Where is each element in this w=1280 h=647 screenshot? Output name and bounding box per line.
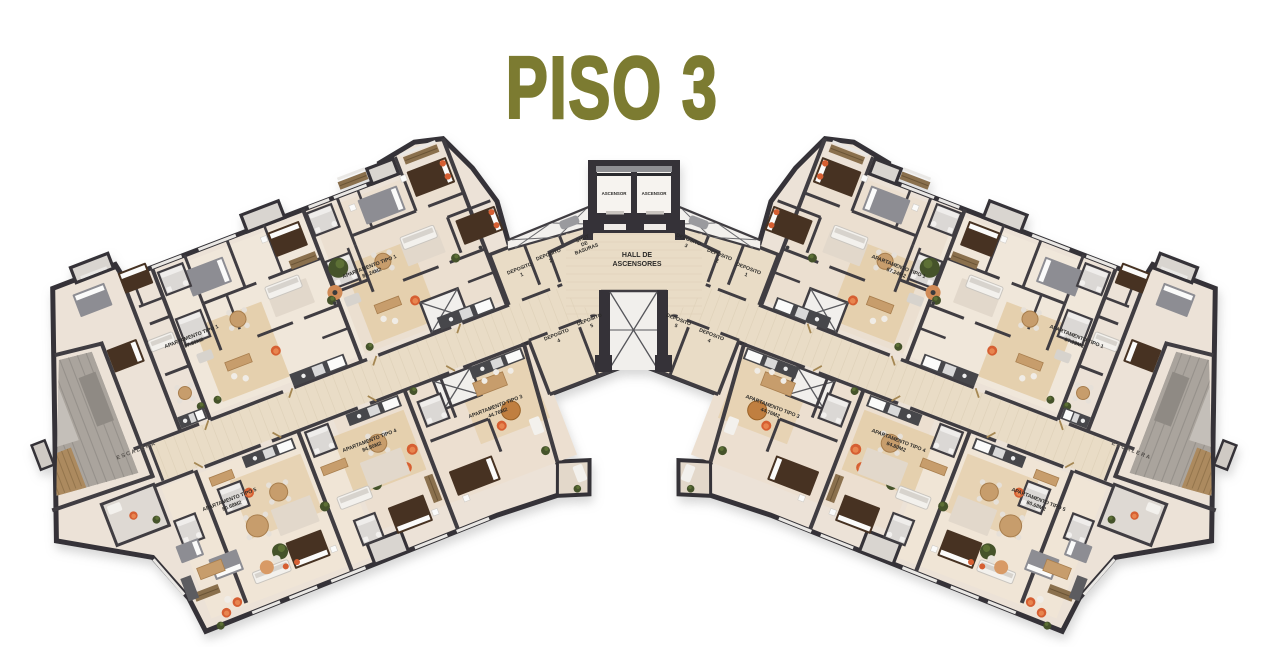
svg-text:ASCENSOR: ASCENSOR bbox=[642, 191, 668, 196]
svg-text:HALL DE: HALL DE bbox=[622, 252, 653, 259]
svg-text:ASCENSORES: ASCENSORES bbox=[612, 261, 661, 268]
svg-text:PISO 3: PISO 3 bbox=[506, 40, 719, 138]
svg-text:ASCENSOR: ASCENSOR bbox=[602, 191, 628, 196]
